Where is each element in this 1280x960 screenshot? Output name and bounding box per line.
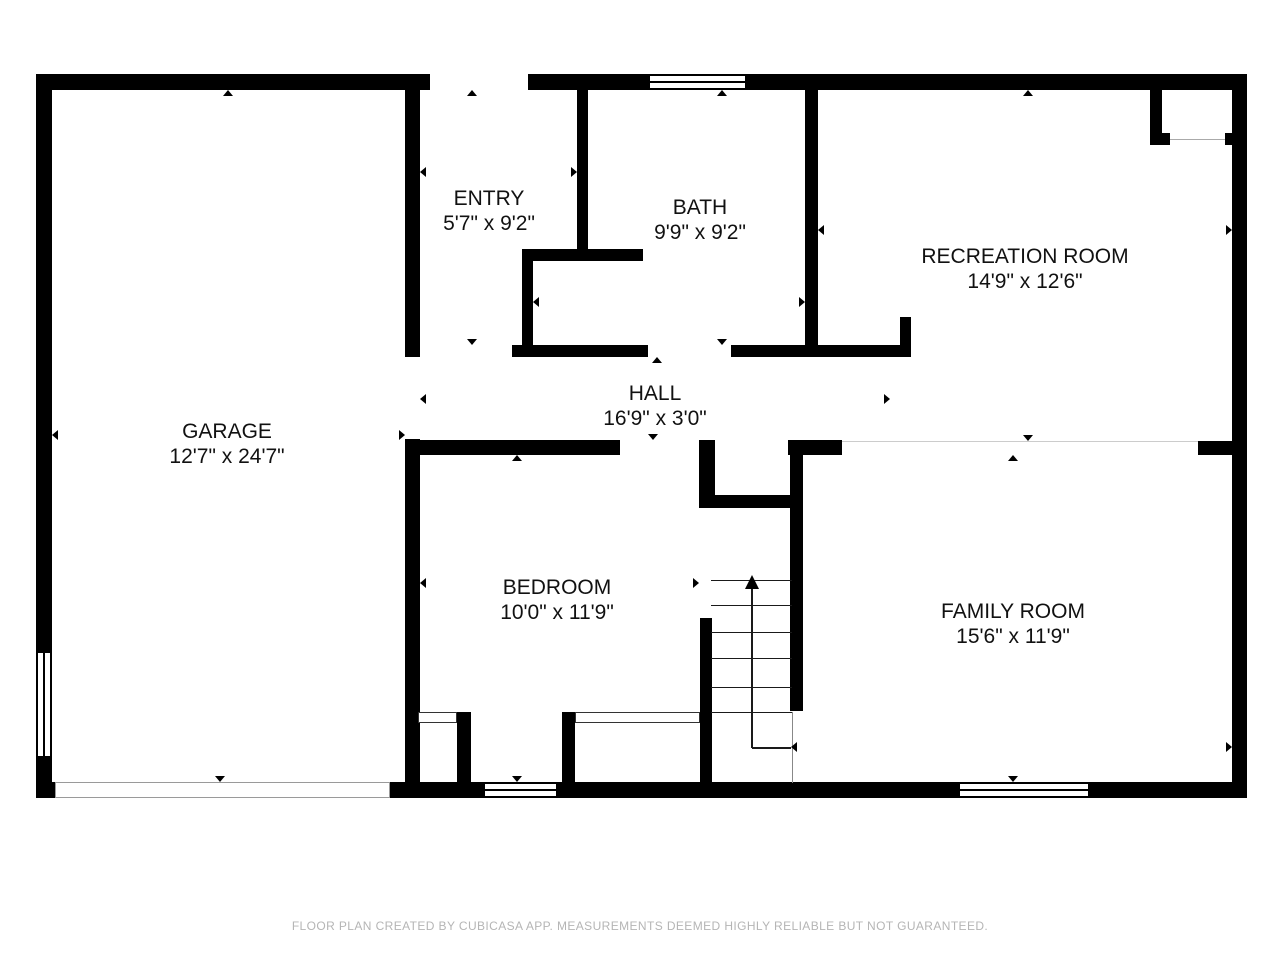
measurement-arrow	[215, 776, 225, 782]
measurement-arrow	[52, 430, 58, 440]
wall-stair-landing	[710, 495, 790, 508]
measurement-arrow	[420, 394, 426, 404]
attribution-text: FLOOR PLAN CREATED BY CUBICASA APP. MEAS…	[0, 917, 1280, 935]
wall-hall-north-east	[731, 345, 911, 357]
room-dimensions: 12'7" x 24'7"	[169, 444, 284, 469]
wall-entry-bath-divider	[577, 90, 588, 252]
room-dimensions: 10'0" x 11'9"	[500, 600, 614, 625]
measurement-arrow	[1008, 455, 1018, 461]
window-recreation-niche	[1170, 133, 1225, 145]
garage-door	[55, 782, 390, 798]
wall-niche-stub-right	[1225, 133, 1232, 145]
room-dimensions: 5'7" x 9'2"	[443, 211, 535, 236]
measurement-arrow	[693, 578, 699, 588]
window-bath	[648, 74, 747, 90]
measurement-arrow	[884, 394, 890, 404]
measurement-arrow	[223, 90, 233, 96]
wall-segment	[1090, 782, 1247, 798]
measurement-arrow	[399, 430, 405, 440]
measurement-arrow	[512, 455, 522, 461]
wall-niche-stub-left	[1162, 133, 1170, 145]
measurement-arrow	[512, 776, 522, 782]
room-name: GARAGE	[169, 419, 284, 444]
closet-door-left	[418, 712, 457, 723]
wall-stair-east	[790, 440, 803, 711]
wall-hall-south-right-stub	[1198, 441, 1232, 455]
window-garage-left	[36, 651, 52, 758]
floor-plan: GARAGE12'7" x 24'7"ENTRY5'7" x 9'2"BATH9…	[0, 0, 1280, 960]
measurement-arrow	[1226, 225, 1232, 235]
room-label-recreation-room: RECREATION ROOM14'9" x 12'6"	[921, 244, 1128, 294]
measurement-arrow	[818, 225, 824, 235]
measurement-arrow	[648, 434, 658, 440]
measurement-arrow	[533, 297, 539, 307]
stair-up-arrow-icon	[745, 575, 759, 589]
room-name: HALL	[603, 381, 707, 406]
room-label-bath: BATH9'9" x 9'2"	[654, 195, 746, 245]
room-label-bedroom: BEDROOM10'0" x 11'9"	[500, 575, 614, 625]
wall-segment	[36, 74, 52, 651]
measurement-arrow	[717, 339, 727, 345]
room-name: BEDROOM	[500, 575, 614, 600]
wall-entry-closet-v	[522, 249, 533, 345]
measurement-arrow	[791, 742, 797, 752]
room-label-entry: ENTRY5'7" x 9'2"	[443, 186, 535, 236]
measurement-arrow	[717, 90, 727, 96]
stair-direction-line	[751, 589, 753, 748]
room-name: ENTRY	[443, 186, 535, 211]
stair-direction-line	[752, 747, 791, 749]
window-bedroom	[483, 782, 558, 798]
measurement-arrow	[420, 578, 426, 588]
room-dimensions: 16'9" x 3'0"	[603, 406, 707, 431]
wall-hall-north-west	[512, 345, 648, 357]
wall-garage-east-upper	[405, 90, 420, 357]
wall-segment	[36, 782, 55, 798]
wall-segment	[390, 782, 483, 798]
room-name: FAMILY ROOM	[941, 599, 1085, 624]
room-name: RECREATION ROOM	[921, 244, 1128, 269]
measurement-arrow	[420, 167, 426, 177]
measurement-arrow	[1023, 435, 1033, 441]
wall-bedroom-closet-1	[457, 712, 471, 782]
wall-segment	[528, 74, 648, 90]
room-dimensions: 15'6" x 11'9"	[941, 624, 1085, 649]
room-label-hall: HALL16'9" x 3'0"	[603, 381, 707, 431]
measurement-arrow	[1008, 776, 1018, 782]
measurement-arrow	[799, 297, 805, 307]
room-label-garage: GARAGE12'7" x 24'7"	[169, 419, 284, 469]
wall-segment	[36, 74, 430, 90]
room-dimensions: 9'9" x 9'2"	[654, 220, 746, 245]
wall-segment	[1232, 74, 1247, 798]
open-boundary-line	[842, 441, 1198, 442]
measurement-arrow	[1023, 90, 1033, 96]
measurement-arrow	[571, 167, 577, 177]
measurement-arrow	[1226, 742, 1232, 752]
wall-segment	[558, 782, 958, 798]
wall-bath-east	[805, 90, 818, 357]
wall-entry-closet-h	[522, 249, 643, 261]
wall-segment	[747, 74, 1247, 90]
closet-door-right	[575, 712, 700, 723]
wall-bedroom-closet-2	[562, 712, 575, 782]
room-dimensions: 14'9" x 12'6"	[921, 269, 1128, 294]
room-label-family-room: FAMILY ROOM15'6" x 11'9"	[941, 599, 1085, 649]
window-family-room	[958, 782, 1090, 798]
measurement-arrow	[467, 90, 477, 96]
wall-hall-south-west	[405, 440, 620, 455]
wall-stair-west	[700, 618, 712, 782]
wall-rec-stub	[900, 317, 911, 357]
measurement-arrow	[467, 339, 477, 345]
wall-niche	[1150, 90, 1162, 145]
room-name: BATH	[654, 195, 746, 220]
measurement-arrow	[652, 357, 662, 363]
wall-garage-east-lower	[405, 439, 420, 782]
